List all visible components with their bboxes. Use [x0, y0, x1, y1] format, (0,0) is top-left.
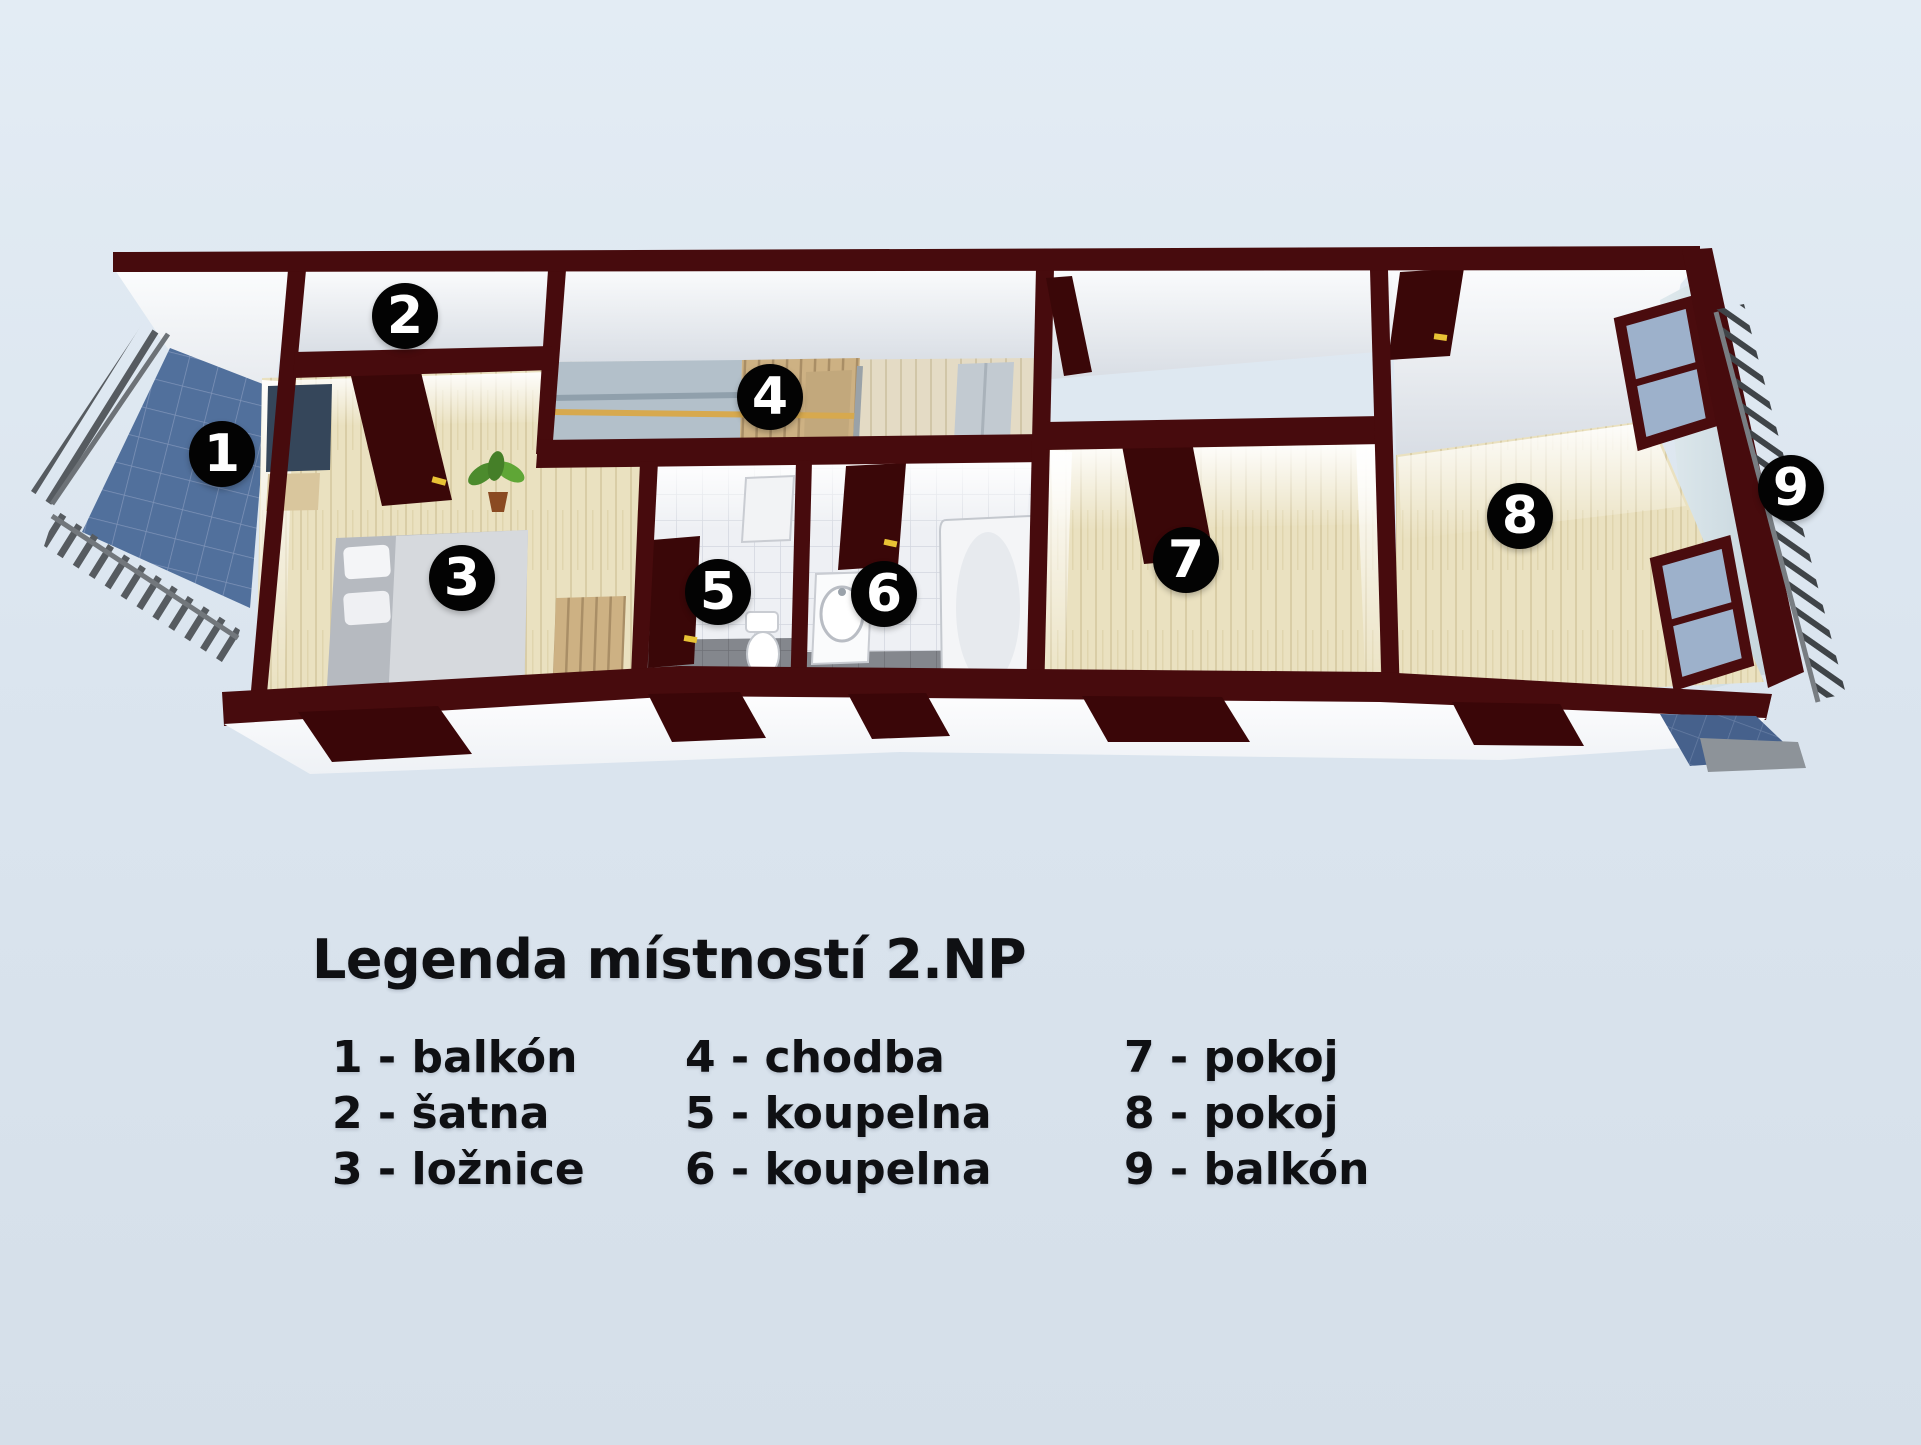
legend-item-2: 2 - šatna — [332, 1086, 585, 1142]
hall-4-banister-post — [856, 366, 860, 440]
bathroom-6-door — [838, 463, 906, 570]
bathroom-6-bathtub-basin — [956, 532, 1020, 684]
facade-window-4 — [1082, 696, 1250, 742]
legend-item-6: 6 - koupelna — [685, 1142, 992, 1198]
marker-room-3-loznice: 3 — [429, 545, 495, 611]
hall-4-handrail — [552, 412, 860, 416]
hall-4-stairwell-void — [548, 360, 742, 446]
legend-item-7: 7 - pokoj — [1124, 1030, 1369, 1086]
legend-item-4: 4 - chodba — [685, 1030, 992, 1086]
hall-4-lower-rail — [552, 395, 740, 398]
room-3-pillow-1 — [343, 544, 391, 579]
marker-room-4-chodba: 4 — [737, 364, 803, 430]
legend-item-8: 8 - pokoj — [1124, 1086, 1369, 1142]
bathroom-5-toilet-tank — [746, 612, 778, 632]
front-facade — [222, 666, 1772, 774]
legend-item-1: 1 - balkón — [332, 1030, 585, 1086]
legend-column-2: 4 - chodba 5 - koupelna 6 - koupelna — [685, 1030, 992, 1198]
hall-4-stair-wall — [804, 370, 852, 440]
marker-room-7-pokoj: 7 — [1153, 527, 1219, 593]
room-3-pillow-2 — [343, 590, 391, 625]
bathroom-6 — [800, 458, 1038, 700]
legend-title: Legenda místností 2.NP — [312, 928, 1026, 991]
legend-column-1: 1 - balkón 2 - šatna 3 - ložnice — [332, 1030, 585, 1198]
room-7-top-wall-shade — [1050, 444, 1382, 530]
floor-plan-rendering — [0, 0, 1921, 1445]
bathroom-6-faucet — [838, 588, 846, 596]
floor-plan-page: 1 2 3 4 5 6 7 8 9 Legenda místností 2.NP… — [0, 0, 1921, 1445]
marker-room-2-satna: 2 — [372, 283, 438, 349]
bathroom-5-shower — [742, 476, 794, 542]
legend-column-3: 7 - pokoj 8 - pokoj 9 - balkón — [1124, 1030, 1369, 1198]
marker-room-6-koupelna: 6 — [851, 561, 917, 627]
wall-room7-top — [1046, 416, 1384, 450]
marker-room-8-pokoj: 8 — [1487, 483, 1553, 549]
balcony-1 — [31, 323, 268, 666]
marker-room-1-balkon: 1 — [189, 421, 255, 487]
hall-4-back-wall — [550, 266, 1040, 366]
legend-item-9: 9 - balkón — [1124, 1142, 1369, 1198]
legend-item-3: 3 - ložnice — [332, 1142, 585, 1198]
legend-item-5: 5 - koupelna — [685, 1086, 992, 1142]
marker-room-9-balkon: 9 — [1758, 455, 1824, 521]
wall-back — [113, 246, 1700, 272]
balcony-9-grate — [1700, 738, 1806, 772]
marker-room-5-koupelna: 5 — [685, 559, 751, 625]
